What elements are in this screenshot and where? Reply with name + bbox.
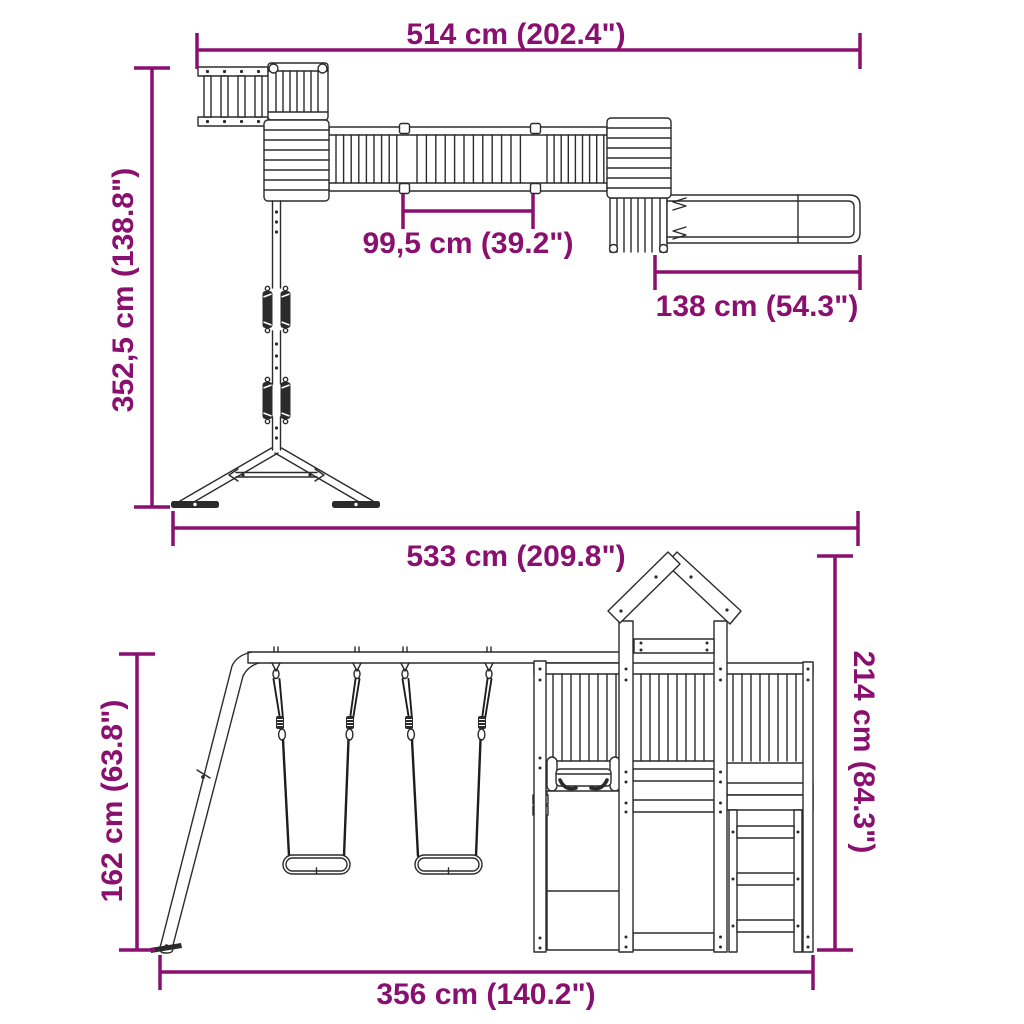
dim-top-depth: 352,5 cm (138.8")	[107, 68, 170, 507]
bridge-top	[329, 124, 607, 194]
dim-label-slide-length: 138 cm (54.3")	[656, 290, 859, 323]
ladder-rung	[737, 873, 794, 885]
dim-label-overall-width: 533 cm (209.8")	[406, 540, 625, 573]
tower-board	[634, 639, 714, 653]
a-frame-top	[171, 448, 380, 508]
railing-balusters	[641, 674, 704, 761]
swing-arm-top	[171, 201, 380, 508]
swing-seat	[283, 855, 350, 874]
dim-label-bridge-width: 99,5 cm (39.2")	[362, 227, 573, 260]
dim-tower-height: 214 cm (84.3")	[817, 556, 880, 950]
front-view	[150, 552, 813, 953]
swing-rope	[476, 663, 493, 856]
dim-label-tower-height: 214 cm (84.3")	[847, 651, 880, 854]
dim-label-base-width: 356 cm (140.2")	[376, 978, 595, 1011]
dim-label-swing-height: 162 cm (63.8")	[96, 700, 129, 903]
swing-hanger-top	[263, 286, 291, 332]
railing-balusters	[733, 674, 796, 761]
dimensions: 514 cm (202.4") 352,5 cm (138.8") 99,5 c…	[96, 18, 880, 1011]
dim-base-width: 356 cm (140.2")	[160, 955, 813, 1011]
post	[534, 661, 546, 952]
post	[619, 621, 633, 952]
swing-beam	[248, 652, 622, 663]
railing-top-rail	[534, 663, 813, 674]
roof-front	[608, 552, 741, 624]
swing-seat	[415, 855, 482, 874]
post	[803, 662, 813, 952]
swing-rope	[272, 663, 289, 856]
monkey-bar-ladder-top	[198, 67, 268, 126]
tower-b-top	[607, 118, 671, 198]
slide-top	[667, 195, 860, 243]
playset-dimension-drawing: 514 cm (202.4") 352,5 cm (138.8") 99,5 c…	[0, 0, 1024, 1024]
platform-top	[268, 63, 328, 120]
ladder-front	[729, 810, 802, 952]
swing-hanger-top	[263, 377, 291, 423]
swing-rope	[344, 663, 361, 856]
dim-slide-length: 138 cm (54.3")	[655, 255, 860, 323]
swing-rope	[401, 663, 418, 856]
dim-bridge-width: 99,5 cm (39.2")	[362, 194, 573, 260]
ladder-rung	[737, 920, 794, 932]
ladder-rung	[737, 826, 794, 838]
dimension-diagram-page: 514 cm (202.4") 352,5 cm (138.8") 99,5 c…	[0, 0, 1024, 1024]
dim-label-top-width: 514 cm (202.4")	[406, 18, 625, 51]
annex-top	[610, 198, 668, 253]
top-view	[171, 63, 860, 508]
railing-balusters	[553, 674, 616, 761]
tower-a-top	[264, 120, 329, 201]
post	[714, 621, 727, 952]
dim-top-width: 514 cm (202.4")	[197, 18, 860, 69]
dim-swing-height: 162 cm (63.8")	[96, 654, 155, 950]
dim-label-top-depth: 352,5 cm (138.8")	[107, 168, 140, 412]
playhouse-front	[533, 552, 813, 952]
dim-overall-width: 533 cm (209.8")	[173, 511, 858, 573]
slide-chute	[547, 791, 620, 950]
